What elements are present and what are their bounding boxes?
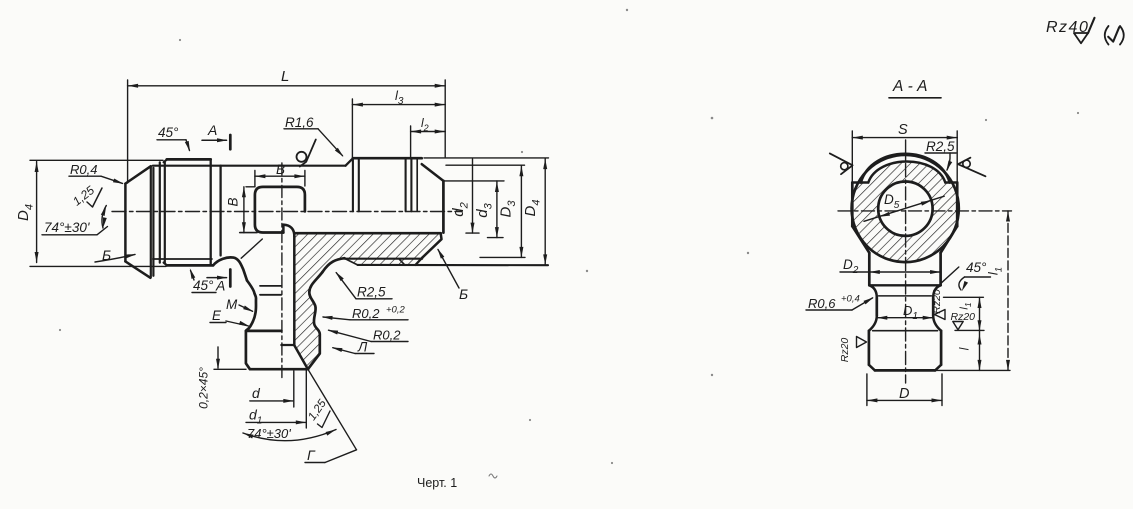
svg-text:d3: d3 [474,202,495,217]
svg-text:D: D [899,386,909,402]
svg-text:R0,2: R0,2 [352,306,380,321]
svg-text:D2: D2 [843,257,859,276]
svg-text:d1: d1 [249,407,262,427]
svg-text:Г: Г [307,447,316,463]
svg-text:l1: l1 [959,302,974,309]
svg-text:45°: 45° [158,125,179,140]
svg-text:L: L [281,68,289,85]
svg-text:Rz20: Rz20 [931,289,943,314]
svg-text:R2,5: R2,5 [357,285,386,300]
svg-text:0,2×45°: 0,2×45° [197,367,211,409]
svg-text:А - А: А - А [892,78,927,95]
svg-text:R2,5: R2,5 [926,139,955,154]
svg-text:l: l [958,346,972,350]
svg-text:Е: Е [212,308,222,323]
svg-text:+0,4: +0,4 [841,294,860,305]
svg-text:R1,6: R1,6 [285,115,314,130]
svg-text:l2: l2 [421,116,429,133]
svg-text:Черт. 1: Черт. 1 [417,476,457,490]
svg-text:Л: Л [357,340,368,355]
svg-text:Б: Б [459,286,468,302]
svg-text:А: А [215,278,225,294]
svg-text:В: В [276,162,285,177]
svg-text:М: М [226,297,238,312]
svg-text:В: В [226,197,241,206]
svg-text:45°: 45° [966,260,987,275]
svg-text:74°±30': 74°±30' [247,426,291,441]
svg-text:S: S [898,122,908,138]
svg-text:D4: D4 [15,204,36,221]
svg-text:А: А [207,122,217,138]
svg-text:D5: D5 [884,192,900,211]
svg-text:Rz20: Rz20 [839,338,851,363]
svg-text:d2: d2 [450,202,471,216]
svg-text:l1: l1 [986,267,1005,275]
svg-text:D1: D1 [903,303,918,322]
svg-text:d: d [252,385,261,401]
svg-text:R0,4: R0,4 [70,162,97,177]
svg-text:45°: 45° [193,278,214,293]
svg-text:R0,6: R0,6 [808,296,836,311]
svg-text:R0,2: R0,2 [373,328,401,343]
svg-text:74°±30': 74°±30' [44,220,90,235]
svg-text:D4: D4 [522,200,543,217]
svg-text:D3: D3 [498,200,519,218]
svg-text:+0,2: +0,2 [386,305,405,316]
